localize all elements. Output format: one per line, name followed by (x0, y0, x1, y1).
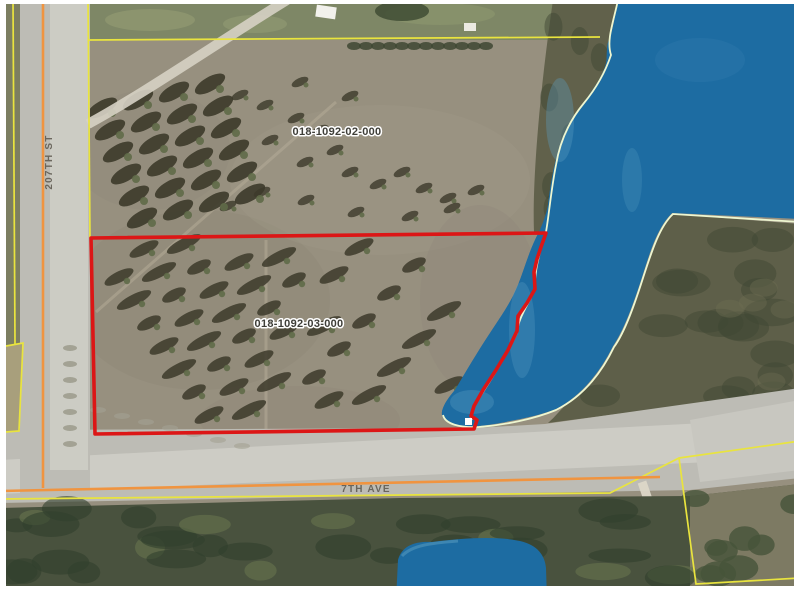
tree (424, 340, 430, 346)
tree-shadow (63, 409, 77, 415)
tree-shadow (114, 413, 130, 419)
tree (347, 42, 361, 50)
tree (266, 193, 271, 198)
tree (139, 301, 145, 307)
tree (364, 248, 370, 254)
tree (310, 201, 315, 206)
tree (188, 115, 196, 123)
tree (300, 119, 305, 124)
tree-shadow (63, 425, 77, 431)
tree (121, 506, 156, 528)
tree (232, 129, 240, 137)
tree (431, 42, 445, 50)
tree (124, 153, 132, 161)
tree-shadow (210, 437, 226, 443)
tree (132, 175, 140, 183)
parcel-corner-marker (465, 418, 472, 425)
tree (369, 322, 375, 328)
tree (656, 269, 698, 294)
tree (219, 291, 225, 297)
tree-shadow (63, 361, 77, 367)
tree (239, 388, 245, 394)
tree (639, 314, 688, 337)
tree (234, 314, 240, 320)
tree (729, 526, 760, 551)
tree (32, 550, 90, 575)
tree (199, 393, 205, 399)
tree (334, 401, 340, 407)
tree (248, 173, 256, 181)
small-building (464, 23, 476, 31)
aerial-parcel-map[interactable]: 018-1092-02-000 018-1092-03-000 207TH ST… (0, 0, 800, 600)
tree-shadow (63, 345, 77, 351)
tree (407, 42, 421, 50)
tree (571, 27, 589, 55)
tree (414, 217, 419, 222)
tree (758, 373, 786, 391)
tree (259, 286, 265, 292)
tree (467, 42, 481, 50)
tree (383, 42, 397, 50)
tree (164, 273, 170, 279)
tree (232, 207, 237, 212)
tree (443, 42, 457, 50)
tree (419, 266, 425, 272)
tree (354, 173, 359, 178)
tree-shadow (63, 393, 77, 399)
tree (479, 42, 493, 50)
tree (184, 370, 190, 376)
tree (304, 83, 309, 88)
tree (154, 324, 160, 330)
tree (220, 203, 228, 211)
tree (279, 383, 285, 389)
tree (339, 151, 344, 156)
207th-st-surface (50, 0, 88, 470)
tree (419, 42, 433, 50)
tree (456, 209, 461, 214)
tree (116, 131, 124, 139)
tree (311, 513, 355, 529)
tree (144, 101, 152, 109)
tree (244, 263, 250, 269)
tree (371, 42, 385, 50)
tree-shadow (63, 377, 77, 383)
tree (289, 332, 295, 338)
tree (299, 281, 305, 287)
street-label-7th-ave: 7TH AVE (341, 484, 391, 495)
tree (244, 96, 249, 101)
tree (406, 173, 411, 178)
parcel-label-02: 018-1092-02-000 (293, 126, 382, 138)
tree (148, 219, 156, 227)
tree (249, 337, 255, 343)
tree (309, 163, 314, 168)
tree (204, 268, 210, 274)
tree (214, 416, 220, 422)
tree (224, 365, 230, 371)
tree (22, 511, 79, 537)
tree (575, 563, 630, 580)
tree (752, 228, 794, 252)
tree (244, 561, 276, 581)
tree (750, 340, 800, 367)
tree (204, 159, 212, 167)
tree (399, 368, 405, 374)
tree (707, 227, 758, 253)
tree (374, 396, 380, 402)
tree (339, 276, 345, 282)
tree (189, 245, 195, 251)
tree (354, 97, 359, 102)
tree (152, 123, 160, 131)
map-viewport[interactable]: 018-1092-02-000 018-1092-03-000 207TH ST… (0, 0, 800, 600)
tree (149, 250, 155, 256)
north-grass-strip (20, 0, 580, 40)
parcel-label-03: 018-1092-03-000 (255, 318, 344, 330)
tree (455, 42, 469, 50)
tree (212, 181, 220, 189)
street-label-207th-st: 207TH ST (44, 134, 55, 189)
tree-shadow (90, 407, 106, 413)
tree (176, 189, 184, 197)
tree (449, 312, 455, 318)
tree (224, 107, 232, 115)
tree (209, 342, 215, 348)
tree (169, 347, 175, 353)
tree (716, 300, 744, 318)
tree (382, 185, 387, 190)
tree (240, 151, 248, 159)
tree (196, 137, 204, 145)
tree (395, 42, 409, 50)
tree (315, 534, 371, 559)
tree (179, 296, 185, 302)
tree (274, 141, 279, 146)
tree (254, 411, 260, 417)
tree (274, 309, 280, 315)
tree (719, 555, 758, 581)
tree (480, 191, 485, 196)
tree (588, 549, 651, 563)
tree (256, 195, 264, 203)
tree (284, 258, 290, 264)
tree (124, 278, 130, 284)
tree (428, 189, 433, 194)
tree (179, 515, 231, 534)
tree (194, 319, 200, 325)
tree (180, 93, 188, 101)
tree (168, 167, 176, 175)
tree (141, 530, 205, 549)
tree (600, 514, 651, 530)
tree-shadow (234, 443, 250, 449)
tree (359, 42, 373, 50)
tree-shadow (138, 419, 154, 425)
tree (452, 199, 457, 204)
tree-shadow (63, 441, 77, 447)
tree (184, 211, 192, 219)
tree (140, 197, 148, 205)
tree (319, 378, 325, 384)
tree (360, 213, 365, 218)
tree (216, 85, 224, 93)
tree (160, 145, 168, 153)
tree-shadow (162, 425, 178, 431)
tree (394, 294, 400, 300)
tree (269, 106, 274, 111)
tree (264, 360, 270, 366)
tree (344, 350, 350, 356)
